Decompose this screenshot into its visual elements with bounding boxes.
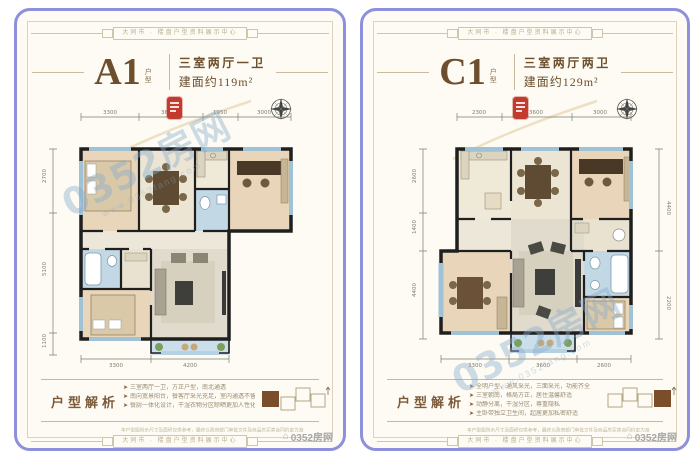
armchair — [171, 253, 186, 263]
analysis-bullets: ➤三室两厅一卫，方正户型，南北通透 ➤南向宽景阳台，餐客厅采光充足，室内通透不留… — [123, 384, 255, 411]
svg-text:2600: 2600 — [597, 363, 611, 369]
bullet: ➤动静分离，干湿分区，尊重隐私 — [469, 401, 601, 410]
svg-text:1400: 1400 — [412, 220, 418, 234]
building-key-plan — [260, 383, 332, 417]
bullet: ➤主卧带独立卫生间，起居更加私密舒适 — [469, 410, 601, 419]
coffee-table — [175, 281, 193, 305]
armchair — [193, 253, 208, 263]
house-icon: ⌂ — [627, 431, 633, 442]
toilet — [590, 257, 600, 269]
svg-text:3600: 3600 — [536, 363, 550, 369]
svg-text:3600: 3600 — [529, 110, 543, 116]
plant — [217, 343, 225, 351]
ribbon-endcap — [247, 437, 258, 446]
arrow-icon: ➤ — [469, 411, 474, 417]
desk — [579, 159, 623, 174]
bullet: ➤三室朝南，格局方正，居住温馨舒适 — [469, 392, 601, 401]
analysis-title: 户型解析 — [397, 392, 465, 411]
svg-text:4400: 4400 — [412, 283, 418, 297]
bathtub — [611, 255, 628, 293]
unit-suffix: 户 型 — [490, 69, 497, 85]
bullet: ➤餐厨一体化设计，干湿衣物分区晾晒更加人性化，增添了居家人的生活舒适与温馨 — [123, 402, 255, 411]
ribbon-text: 大同市 · 楼盘户型资料展示中心 — [113, 435, 246, 448]
floorplan-card-a1: 大同市 · 楼盘户型资料展示中心 A1 户 型 三室两厅一卫 建面约119m² — [14, 8, 346, 451]
svg-text:2700: 2700 — [42, 169, 48, 183]
room-count: 三室两厅一卫 — [179, 54, 266, 71]
plant — [155, 343, 163, 351]
tv-cabinet — [575, 259, 581, 307]
house-icon: ⌂ — [283, 431, 289, 442]
ribbon-text: 大同市 · 楼盘户型资料展示中心 — [458, 27, 591, 40]
site-logo: ⌂ 0352房网 — [283, 429, 333, 444]
washer — [613, 229, 625, 241]
bookshelf — [281, 159, 288, 203]
svg-text:1100: 1100 — [42, 334, 48, 348]
arrow-icon: ➤ — [469, 393, 474, 399]
ribbon-endcap — [102, 437, 113, 446]
ribbon-endcap — [592, 437, 603, 446]
toilet — [200, 197, 210, 210]
analysis-bullets: ➤全明户型，通风采光，三面采光，功能齐全 ➤三室朝南，格局方正，居住温馨舒适 ➤… — [469, 383, 601, 419]
plant — [564, 339, 572, 347]
svg-text:3300: 3300 — [109, 363, 123, 369]
dining-table — [153, 171, 179, 205]
unit-description: 三室两厅一卫 建面约119m² — [179, 54, 266, 90]
ribbon-endcap — [247, 29, 258, 38]
dining-table — [525, 165, 551, 199]
svg-text:3300: 3300 — [468, 363, 482, 369]
ribbon-endcap — [447, 29, 458, 38]
desk — [237, 161, 281, 175]
svg-text:3300: 3300 — [103, 110, 117, 116]
svg-text:4200: 4200 — [183, 363, 197, 369]
unit-header: C1 户 型 三室两厅两卫 建面约129m² — [363, 47, 687, 97]
svg-text:2300: 2300 — [472, 110, 486, 116]
svg-text:1950: 1950 — [213, 110, 227, 116]
svg-text:5100: 5100 — [42, 262, 48, 276]
north-arrow-icon — [326, 387, 330, 395]
svg-text:2600: 2600 — [412, 169, 418, 183]
red-seal-stamp — [513, 97, 528, 119]
svg-text:2200: 2200 — [665, 296, 671, 310]
building-key-plan — [606, 383, 678, 417]
table — [457, 277, 483, 309]
bullet: ➤南向宽景阳台，餐客厅采光充足，室内通透不留死角，视野开阔 — [123, 393, 255, 402]
bathtub — [85, 253, 101, 285]
floorplan-c1: 2300 3600 3000 2600 1400 4400 4400 2200 … — [379, 101, 679, 373]
floorplan-a1: 3300 3600 1950 3000 2700 5100 1100 3300 … — [33, 101, 333, 373]
top-ribbon: 大同市 · 楼盘户型资料展示中心 — [31, 27, 329, 40]
tv-cabinet — [222, 271, 226, 315]
coffee-table — [535, 269, 555, 295]
plant — [514, 339, 522, 347]
arrow-icon: ➤ — [123, 403, 128, 409]
arrow-icon: ➤ — [123, 385, 128, 391]
ribbon-text: 大同市 · 楼盘户型资料展示中心 — [458, 435, 591, 448]
sink — [591, 281, 600, 290]
unit-suffix: 户 型 — [145, 69, 152, 85]
top-ribbon: 大同市 · 楼盘户型资料展示中心 — [377, 27, 673, 40]
unit-code: A1 — [94, 52, 140, 92]
sink — [217, 195, 226, 204]
svg-text:4400: 4400 — [665, 201, 671, 215]
hallway — [81, 231, 229, 249]
red-seal-stamp — [167, 97, 182, 119]
area-label: 建面约119m² — [179, 73, 266, 90]
site-logo: ⌂ 0352房网 — [627, 429, 677, 444]
wardrobe — [497, 297, 507, 329]
ribbon-endcap — [592, 29, 603, 38]
unit-header: A1 户 型 三室两厅一卫 建面约119m² — [17, 47, 343, 97]
svg-text:3000: 3000 — [593, 110, 607, 116]
ribbon-endcap — [447, 437, 458, 446]
sofa — [513, 259, 524, 307]
ribbon-endcap — [102, 29, 113, 38]
area-label: 建面约129m² — [524, 73, 611, 90]
bullet: ➤全明户型，通风采光，三面采光，功能齐全 — [469, 383, 601, 392]
analysis-title: 户型解析 — [51, 392, 119, 411]
sofa — [155, 269, 166, 315]
hallway — [457, 219, 511, 251]
floorplan-card-c1: 大同市 · 楼盘户型资料展示中心 C1 户 型 三室两厅两卫 建面约129m² — [360, 8, 690, 451]
ribbon-text: 大同市 · 楼盘户型资料展示中心 — [113, 27, 246, 40]
arrow-icon: ➤ — [469, 402, 474, 408]
room-count: 三室两厅两卫 — [524, 54, 611, 71]
north-arrow-icon — [672, 387, 676, 395]
unit-description: 三室两厅两卫 建面约129m² — [524, 54, 611, 90]
arrow-icon: ➤ — [123, 394, 128, 400]
arrow-icon: ➤ — [469, 384, 474, 390]
unit-code: C1 — [439, 52, 485, 92]
svg-text:3000: 3000 — [257, 110, 271, 116]
bullet: ➤三室两厅一卫，方正户型，南北通透 — [123, 384, 255, 393]
